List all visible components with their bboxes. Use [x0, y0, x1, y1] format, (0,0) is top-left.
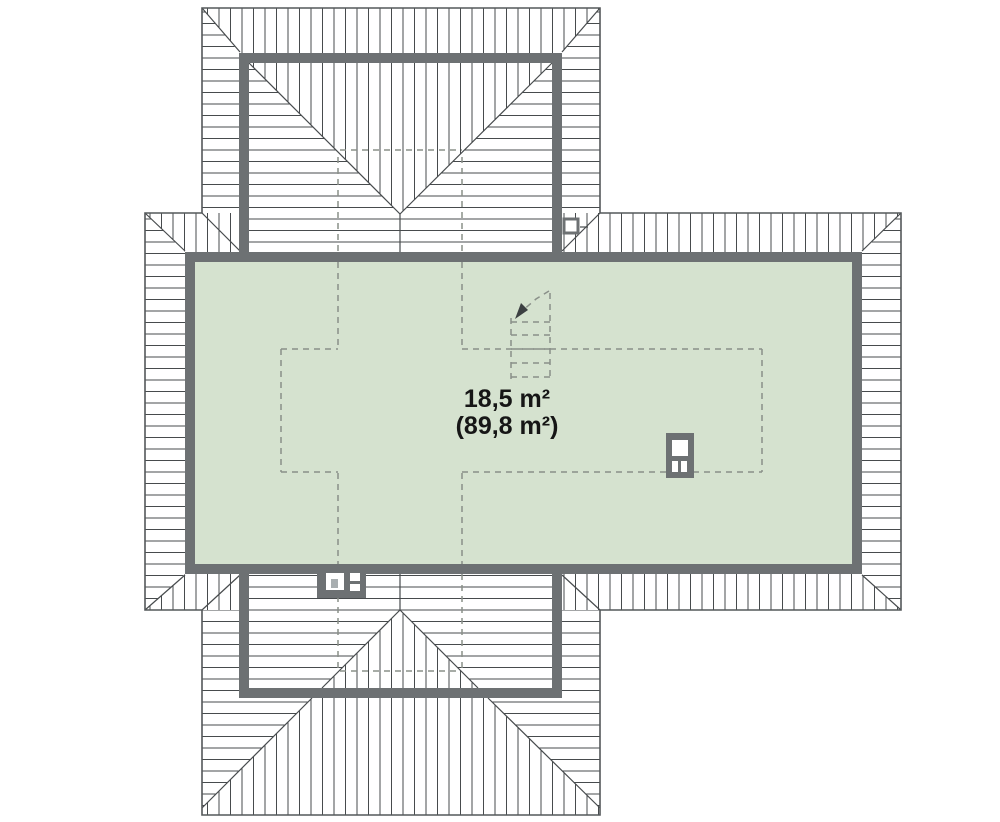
wall-room-bottom [185, 564, 862, 574]
chimney-small [317, 567, 366, 598]
central-eave-left [145, 213, 185, 610]
wall-top-wing-right [552, 53, 562, 262]
wall-bottom-wing-left [239, 564, 249, 698]
wall-room-top [185, 252, 862, 262]
central-eave-top-right [562, 213, 901, 252]
wall-room-left [185, 252, 195, 574]
area-label-total: (89,8 m²) [456, 412, 559, 440]
wall-bottom-wing-bottom [239, 688, 562, 698]
central-eave-right [862, 213, 901, 610]
area-label-usable: 18,5 m² [464, 385, 550, 413]
chimney-large [666, 433, 694, 478]
wall-top-wing-top [239, 53, 562, 63]
top-wing-eave-top [202, 8, 600, 53]
wall-room-right [852, 252, 862, 574]
wall-bottom-wing-right [552, 564, 562, 698]
floor-plan: 18,5 m² (89,8 m²) [0, 0, 1000, 822]
central-eave-bottom-right [562, 574, 901, 610]
roof-plan-svg: 18,5 m² (89,8 m²) [0, 0, 1000, 822]
wall-top-wing-left [239, 53, 249, 262]
